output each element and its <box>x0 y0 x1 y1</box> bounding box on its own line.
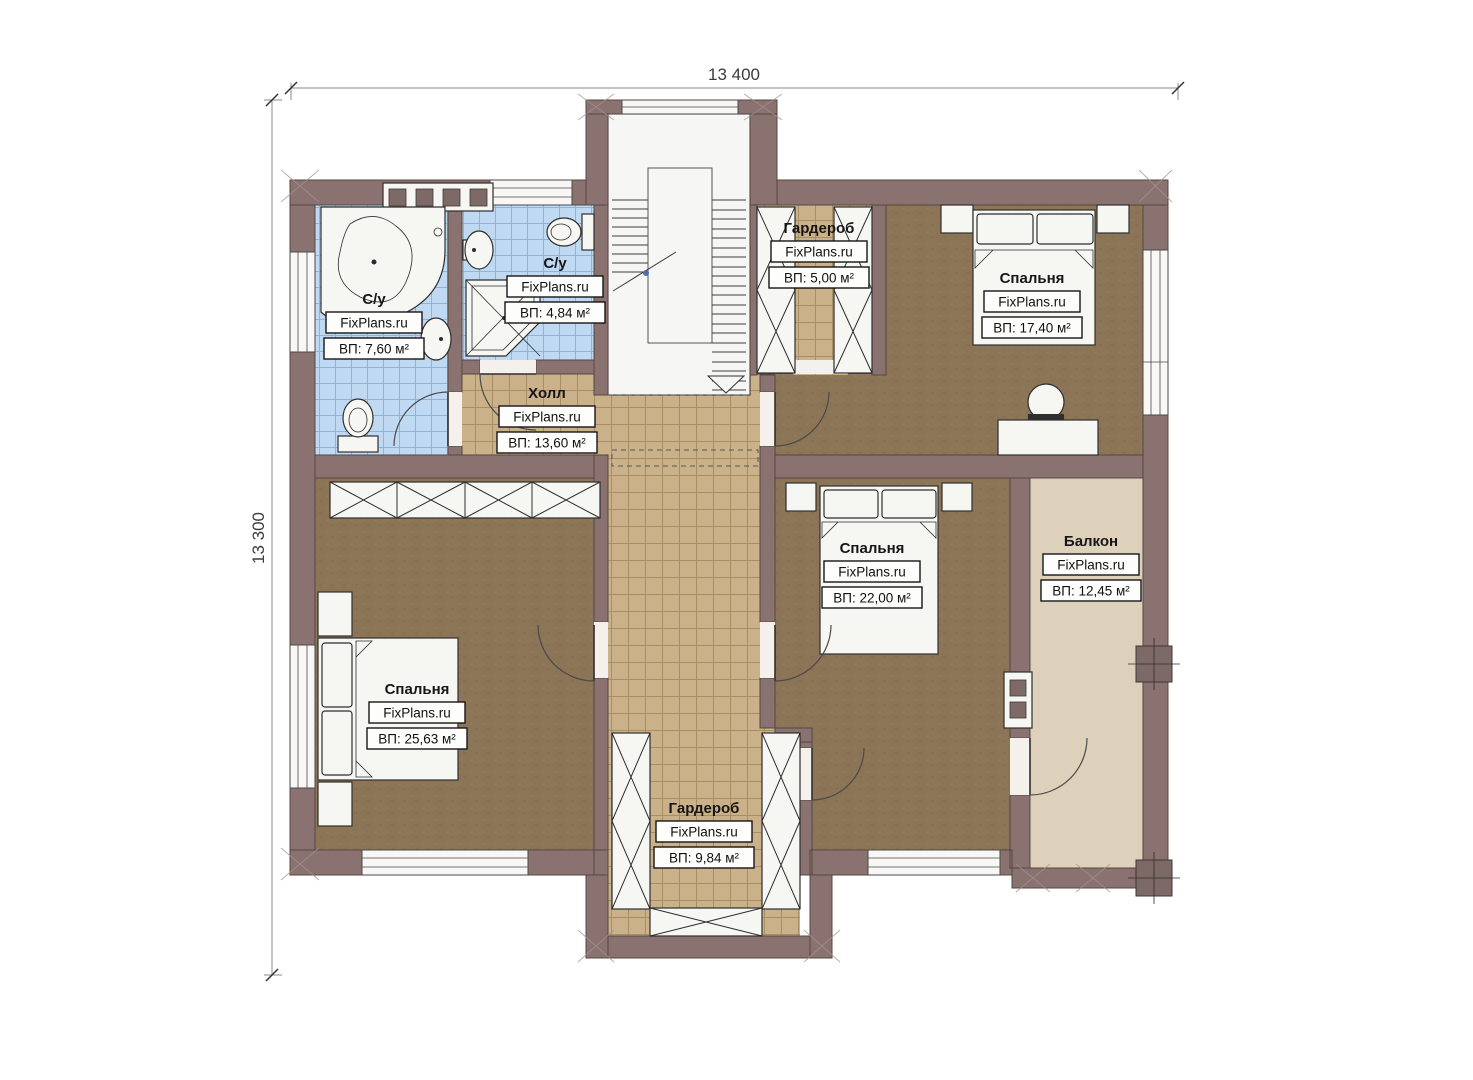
area-text: ВП: 25,63 м² <box>378 732 456 747</box>
wall-cabinet <box>1004 672 1032 728</box>
watermark-text: FixPlans.ru <box>383 706 451 721</box>
window-stair-bay <box>622 100 738 114</box>
dimension-left-label: 13 300 <box>249 512 268 564</box>
nightstand <box>318 592 352 636</box>
pillow <box>882 490 936 518</box>
nightstand <box>318 782 352 826</box>
floor-plan-canvas: С/у FixPlans.ru ВП: 7,60 м² С/у FixPlans… <box>0 0 1473 1080</box>
room-name: Спальня <box>840 540 905 557</box>
window-bottom-left <box>362 850 528 875</box>
nightstand <box>786 483 816 511</box>
window-right <box>1143 250 1168 415</box>
pillow <box>977 214 1033 244</box>
nightstand <box>1097 205 1129 233</box>
window-left-upper <box>290 252 315 352</box>
watermark-text: FixPlans.ru <box>513 410 581 425</box>
dimension-top-label: 13 400 <box>708 65 760 84</box>
area-text: ВП: 5,00 м² <box>784 271 855 286</box>
watermark-text: FixPlans.ru <box>340 316 408 331</box>
room-name: С/у <box>543 255 567 272</box>
watermark-text: FixPlans.ru <box>670 825 738 840</box>
floor-plan: С/у FixPlans.ru ВП: 7,60 м² С/у FixPlans… <box>0 0 1473 1080</box>
pillow <box>322 711 352 775</box>
room-name: Спальня <box>1000 270 1065 287</box>
room-name: Гардероб <box>669 800 740 817</box>
area-text: ВП: 17,40 м² <box>993 321 1071 336</box>
watermark-text: FixPlans.ru <box>785 245 853 260</box>
window-bottom-right <box>868 850 1000 875</box>
room-name: Спальня <box>385 681 450 698</box>
nightstand <box>941 205 973 233</box>
window-top <box>490 180 572 205</box>
pillow <box>322 643 352 707</box>
dimension-top: 13 400 <box>285 65 1184 100</box>
room-label-wardrobe-bottom: Гардероб FixPlans.ru ВП: 9,84 м² <box>654 800 754 868</box>
closet-panel <box>612 733 650 909</box>
window-left-lower <box>290 645 315 788</box>
area-text: ВП: 12,45 м² <box>1052 584 1130 599</box>
area-text: ВП: 22,00 м² <box>833 591 911 606</box>
watermark-text: FixPlans.ru <box>838 565 906 580</box>
pillow <box>824 490 878 518</box>
closet-panel <box>762 733 800 909</box>
bedroom-left-wardrobe <box>330 482 600 518</box>
area-text: ВП: 7,60 м² <box>339 342 410 357</box>
nightstand <box>942 483 972 511</box>
pillow <box>1037 214 1093 244</box>
area-text: ВП: 9,84 м² <box>669 851 740 866</box>
dimension-left: 13 300 <box>249 94 282 981</box>
room-name: Балкон <box>1064 533 1118 550</box>
watermark-text: FixPlans.ru <box>1057 558 1125 573</box>
pedestal-sink-1 <box>421 318 451 360</box>
stair-rail-post <box>643 270 649 276</box>
room-name: С/у <box>362 291 386 308</box>
room-name: Гардероб <box>784 220 855 237</box>
column-post-1 <box>1128 638 1180 690</box>
area-text: ВП: 4,84 м² <box>520 306 591 321</box>
floor-corridor <box>608 455 760 728</box>
column-post-2 <box>1128 852 1180 904</box>
watermark-text: FixPlans.ru <box>998 295 1066 310</box>
room-label-wardrobe-top: Гардероб FixPlans.ru ВП: 5,00 м² <box>769 220 869 288</box>
room-name: Холл <box>528 385 566 402</box>
watermark-text: FixPlans.ru <box>521 280 589 295</box>
area-text: ВП: 13,60 м² <box>508 436 586 451</box>
desk <box>998 420 1098 455</box>
